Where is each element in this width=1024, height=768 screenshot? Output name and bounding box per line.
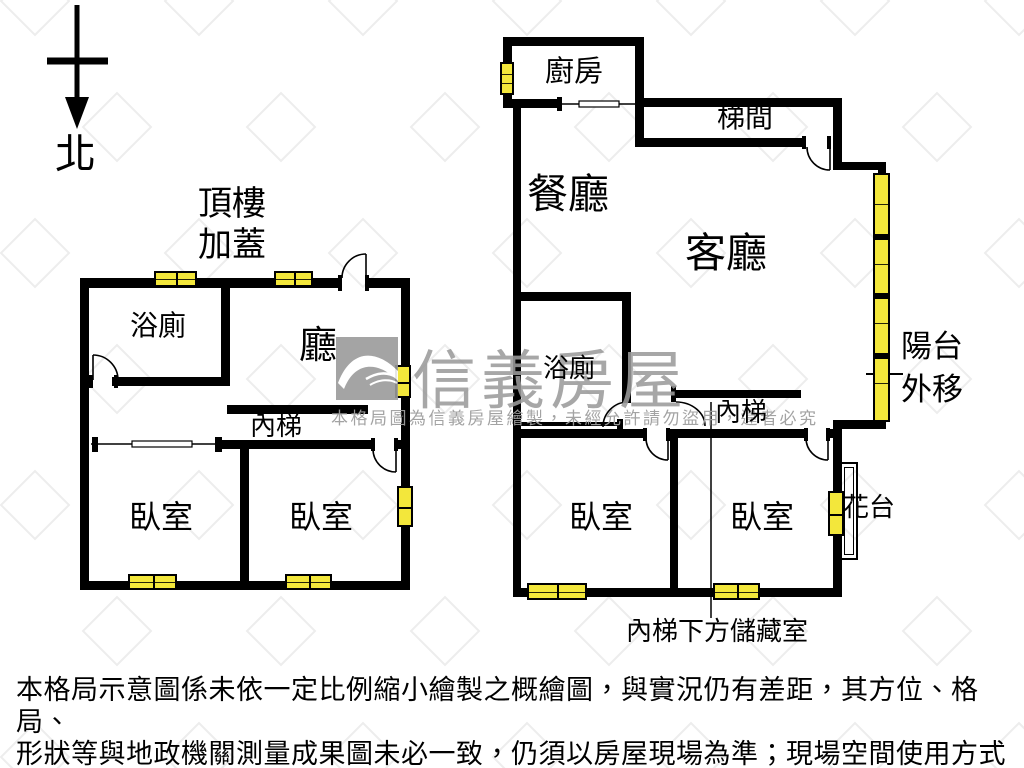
door-jamb: [338, 275, 342, 291]
room-label-bedroom-left2: 臥室: [289, 500, 353, 535]
window: [500, 62, 514, 95]
watermark-diamond: [902, 596, 973, 667]
watermark-diamond: [410, 344, 481, 415]
door-jamb: [92, 437, 98, 452]
wall: [513, 429, 644, 438]
window: [285, 574, 332, 590]
watermark-diamond: [902, 92, 973, 163]
watermark-diamond: [984, 470, 1024, 541]
room-label-stairs-left: 內梯: [250, 413, 302, 441]
window: [274, 271, 313, 287]
north-arrow-icon: [47, 5, 108, 129]
left-plan-title-line1: 頂樓: [198, 184, 266, 225]
door-jamb: [617, 419, 623, 430]
wall: [513, 99, 521, 597]
room-label-bedroom-right1: 臥室: [569, 500, 633, 535]
door-jamb: [371, 438, 375, 451]
window: [713, 583, 760, 600]
floor-plan-canvas: 北 頂樓 加蓋 浴廁 廳 內梯 臥室 臥室 廚房 梯間 餐廳 客廳 浴廁 內梯 …: [0, 0, 1024, 768]
window: [128, 574, 177, 590]
balcony-window-strip: [873, 173, 890, 422]
wall: [635, 138, 803, 147]
wall: [513, 422, 623, 426]
watermark-diamond: [656, 0, 727, 36]
door-jamb: [643, 428, 647, 441]
watermark-diamond: [164, 0, 235, 36]
room-label-bath-left: 浴廁: [130, 312, 186, 342]
wall: [828, 429, 842, 438]
door-jamb: [826, 428, 830, 441]
watermark-diamond: [492, 0, 563, 36]
balcony-label-line2: 外移: [901, 368, 963, 411]
disclaimer-line1: 本格局示意圖係未依一定比例縮小繪製之概繪圖，與實況仍有差距，其方位、格局、: [16, 674, 1016, 738]
watermark-diamond: [492, 218, 563, 289]
wall: [221, 278, 230, 386]
watermark-diamond: [656, 470, 727, 541]
wall: [503, 37, 512, 64]
window: [397, 486, 413, 527]
wall: [635, 37, 644, 147]
wall: [396, 440, 410, 449]
storage-note-label: 內梯下方儲藏室: [626, 618, 808, 646]
watermark-diamond: [0, 470, 70, 541]
door-jamb: [671, 386, 676, 402]
watermark-diamond: [246, 596, 317, 667]
room-label-bedroom-right2: 臥室: [730, 500, 794, 535]
wall: [240, 440, 249, 590]
watermark-diamond: [0, 218, 70, 289]
watermark-diamond: [328, 0, 399, 36]
wall: [833, 98, 842, 170]
right-plan-doors: [560, 101, 830, 460]
balcony-label: 陽台 外移: [901, 325, 963, 411]
door-jamb: [88, 375, 93, 388]
wall: [668, 429, 804, 438]
window: [527, 583, 587, 600]
room-label-stairhall: 梯間: [717, 104, 773, 134]
door-jamb: [827, 136, 831, 149]
door-jamb: [666, 428, 670, 441]
sinyi-logo-icon: [336, 337, 398, 400]
door-jamb: [365, 275, 369, 291]
door-jamb: [114, 375, 118, 388]
watermark-diamond: [574, 92, 645, 163]
wall: [80, 278, 89, 590]
inner-stairs-bar: [672, 390, 801, 398]
watermark-diamond: [492, 470, 563, 541]
watermark-diamond: [0, 0, 70, 36]
door-jamb: [215, 437, 222, 452]
wall: [401, 278, 410, 590]
room-label-kitchen: 廚房: [545, 57, 603, 88]
watermark-diamond: [984, 0, 1024, 36]
door-jamb: [804, 428, 808, 441]
wall: [622, 292, 631, 403]
watermark-diamond: [820, 0, 891, 36]
room-label-dining: 餐廳: [527, 172, 609, 216]
room-label-bath-right: 浴廁: [543, 355, 595, 383]
left-plan-title: 頂樓 加蓋: [198, 184, 266, 266]
watermark-diamond: [410, 92, 481, 163]
window: [154, 271, 197, 287]
watermark-diamond: [82, 596, 153, 667]
window: [828, 491, 844, 536]
wall: [112, 377, 224, 386]
door-jamb: [802, 136, 806, 149]
north-label: 北: [55, 132, 96, 176]
door-jamb: [557, 97, 562, 111]
balcony-label-line1: 陽台: [901, 325, 963, 368]
watermark-diamond: [984, 218, 1024, 289]
left-plan-title-line2: 加蓋: [198, 225, 266, 266]
wall: [503, 37, 644, 46]
room-label-hall: 廳: [299, 326, 337, 367]
disclaimer-line2: 形狀等與地政機關測量成果圖未必一致，仍須以房屋現場為準；現場空間使用方式及: [16, 738, 1016, 768]
room-label-living: 客廳: [685, 231, 767, 275]
wall: [503, 99, 561, 108]
watermark-diamond: [246, 92, 317, 163]
flower-stand-label: 花台: [843, 494, 895, 522]
wall: [670, 429, 678, 597]
disclaimer-text: 本格局示意圖係未依一定比例縮小繪製之概繪圖，與實況仍有差距，其方位、格局、 形狀…: [16, 674, 1016, 768]
window: [395, 365, 411, 398]
room-label-bedroom-left1: 臥室: [129, 500, 193, 535]
door-jamb: [394, 438, 398, 451]
wall: [513, 292, 631, 301]
watermark-diamond: [410, 596, 481, 667]
room-label-stairs-right: 內梯: [715, 399, 767, 427]
